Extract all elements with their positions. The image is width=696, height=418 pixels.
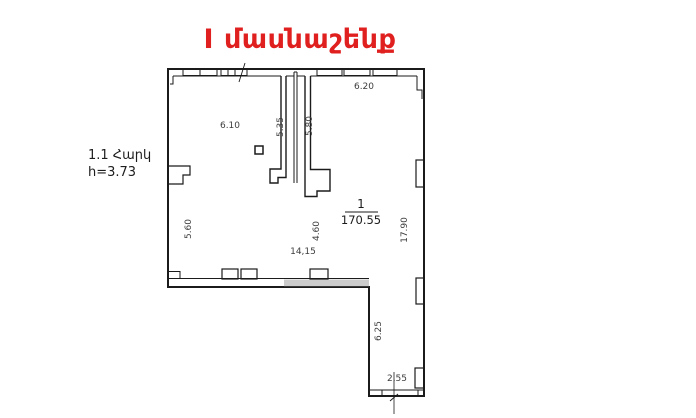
room-area: 170.55 (341, 213, 381, 227)
column-square (255, 146, 263, 154)
door-jamb (310, 269, 328, 279)
door-jamb (241, 269, 257, 279)
outer-wall (168, 69, 424, 396)
window-pane (317, 70, 342, 76)
dim-top-left-width: 6.10 (220, 121, 240, 131)
dim-mid-height: 4.60 (312, 221, 322, 241)
top-wall-windows (183, 63, 397, 82)
window-pane (344, 70, 370, 76)
room-number: 1 (357, 197, 365, 211)
bottom-wall-fill (284, 280, 369, 287)
dim-shaft-right-height: 5.80 (305, 116, 315, 136)
shaft-duct-lines (294, 72, 297, 183)
floor-plan-drawing: 1 170.55 6.10 5.35 5.80 6.20 5.60 4.60 1… (0, 0, 696, 418)
dim-top-right-width: 6.20 (354, 82, 374, 92)
window-pane (373, 70, 397, 76)
right-wall-pilaster-upper (416, 160, 424, 187)
dim-shaft-left-height: 5.35 (276, 117, 286, 137)
dim-bottom-width: 14,15 (290, 247, 316, 257)
door-jamb (222, 269, 238, 279)
dim-corridor-height: 6.25 (374, 321, 384, 341)
top-right-corner-step (417, 76, 422, 99)
dim-left-height: 5.60 (184, 219, 194, 239)
dim-right-height: 17.90 (400, 217, 410, 243)
top-left-corner-step (170, 76, 173, 84)
floor-plan-page: I մասնաշենք 1.1 Հարկ h=3.73 (0, 0, 696, 418)
left-wall-pilaster (168, 166, 190, 184)
corridor-wall-notch (415, 368, 424, 388)
dim-corridor-bottom-width: 2,55 (387, 374, 407, 384)
dimension-tick-top (239, 63, 245, 82)
bottom-left-corner-step (168, 272, 180, 280)
right-wall-pilaster-lower (416, 278, 424, 304)
